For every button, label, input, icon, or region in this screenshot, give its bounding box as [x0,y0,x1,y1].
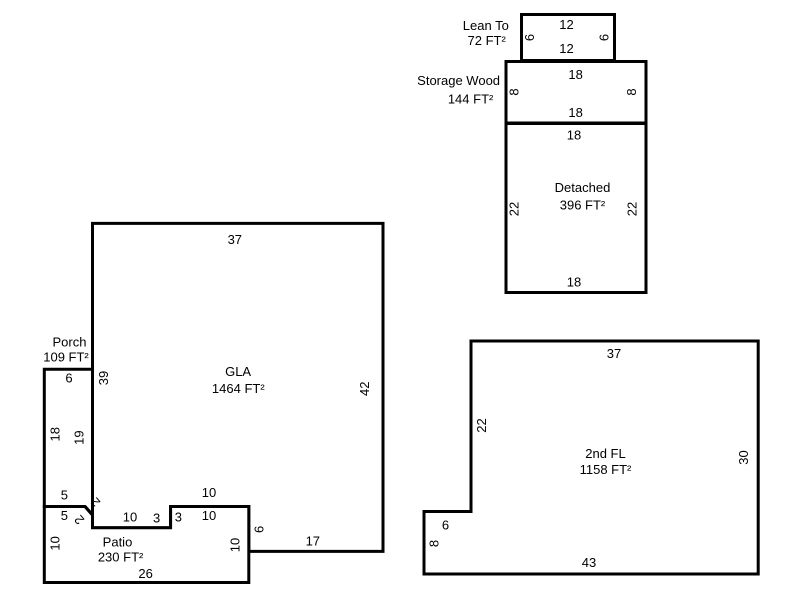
svg-text:37: 37 [228,232,242,247]
svg-text:12: 12 [559,41,573,56]
svg-text:GLA: GLA [225,364,251,379]
svg-text:18: 18 [47,427,62,441]
svg-text:22: 22 [474,418,489,432]
svg-text:10: 10 [202,508,216,523]
svg-text:18: 18 [568,105,582,120]
svg-text:22: 22 [625,202,640,216]
svg-text:8: 8 [506,88,521,95]
svg-text:8: 8 [427,540,442,547]
svg-text:5: 5 [61,508,68,523]
svg-text:6: 6 [65,371,72,386]
svg-text:42: 42 [357,382,372,396]
svg-text:Detached: Detached [555,180,611,195]
svg-text:43: 43 [582,555,596,570]
svg-text:144 FT²: 144 FT² [448,91,494,106]
svg-text:5: 5 [61,488,68,503]
svg-text:37: 37 [607,346,621,361]
svg-text:396 FT²: 396 FT² [560,198,606,213]
svg-text:19: 19 [72,430,87,444]
svg-text:Porch: Porch [53,335,87,350]
svg-text:6: 6 [252,526,267,533]
svg-text:10: 10 [123,510,137,525]
svg-text:18: 18 [568,67,582,82]
svg-text:Lean To: Lean To [463,18,509,33]
svg-text:1464 FT²: 1464 FT² [212,381,265,396]
svg-text:2nd FL: 2nd FL [585,446,625,461]
svg-text:39: 39 [96,371,111,385]
svg-text:10: 10 [202,485,216,500]
svg-text:10: 10 [48,536,63,550]
svg-text:17: 17 [306,534,320,549]
svg-text:109 FT²: 109 FT² [43,350,89,365]
svg-text:18: 18 [567,128,581,143]
svg-text:30: 30 [736,450,751,464]
svg-text:8: 8 [624,88,639,95]
svg-text:3: 3 [175,510,182,525]
svg-text:26: 26 [138,566,152,581]
svg-text:72 FT²: 72 FT² [468,33,507,48]
svg-text:18: 18 [567,275,581,290]
svg-text:1158 FT²: 1158 FT² [580,462,632,477]
svg-text:12: 12 [559,17,573,32]
svg-text:10: 10 [227,538,242,552]
svg-text:Patio: Patio [103,535,133,550]
svg-text:6: 6 [522,34,537,41]
svg-text:22: 22 [507,202,522,216]
svg-text:3: 3 [153,511,160,526]
svg-text:6: 6 [442,518,449,533]
svg-text:230 FT²: 230 FT² [98,549,144,564]
svg-text:Storage Wood: Storage Wood [417,73,500,88]
svg-text:6: 6 [596,34,611,41]
